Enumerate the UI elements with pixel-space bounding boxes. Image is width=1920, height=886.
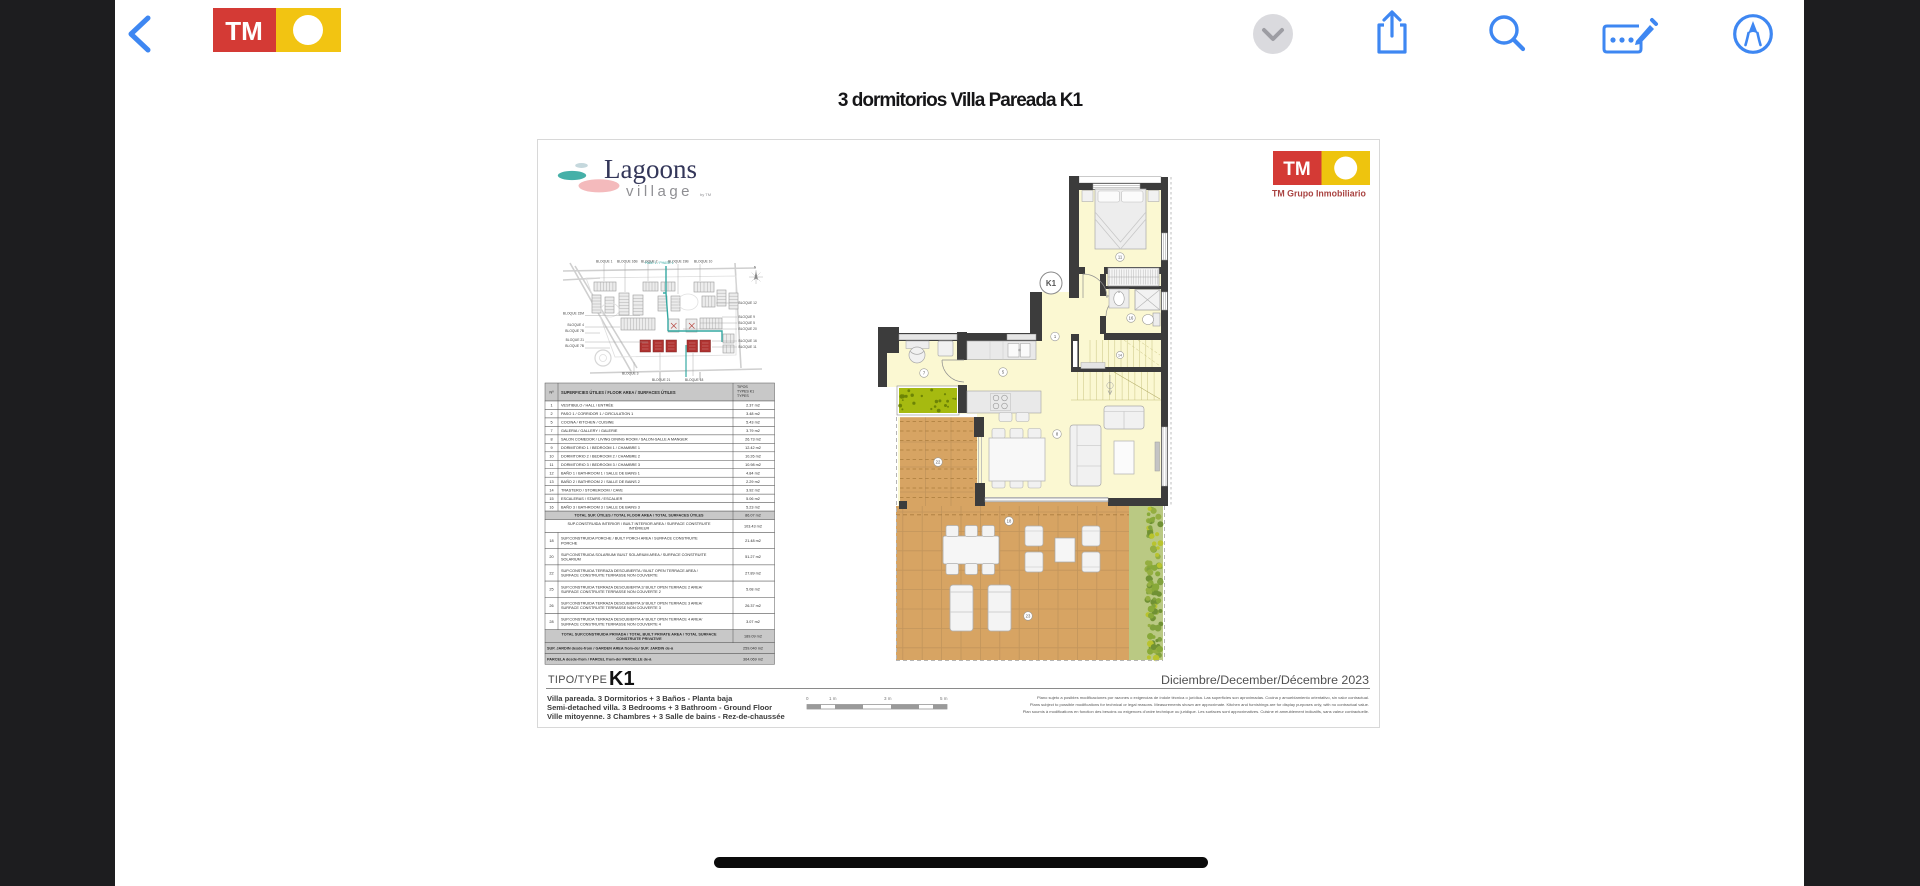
svg-text:SUP. JARDIN desde-from / GARDE: SUP. JARDIN desde-from / GARDEN AREA fro… [547,647,674,651]
svg-text:BLOQUE 19B: BLOQUE 19B [668,260,689,264]
svg-text:Diciembre/December/Décembre 20: Diciembre/December/Décembre 2023 [1161,673,1369,687]
svg-text:BLOQUE 18: BLOQUE 18 [685,378,703,382]
svg-text:16: 16 [549,505,553,509]
svg-text:SUP.CONSTRUIDA TERRAZA DESCUBI: SUP.CONSTRUIDA TERRAZA DESCUBIERTA 3/ BU… [561,602,703,606]
svg-text:TM Grupo Inmobiliario: TM Grupo Inmobiliario [1272,189,1366,199]
svg-text:TIPO/TYPE: TIPO/TYPE [548,674,607,686]
svg-text:BLOQUE 15M: BLOQUE 15M [563,312,584,316]
svg-text:2: 2 [550,412,552,416]
svg-text:Plans subject to possible modi: Plans subject to possible modifications … [1030,702,1369,707]
svg-text:TOTAL SUP.CONSTRUIDA PRIVADA /: TOTAL SUP.CONSTRUIDA PRIVADA / TOTAL BUI… [562,632,717,636]
svg-text:BLOQUE 5: BLOQUE 5 [739,321,756,325]
svg-text:SUP.CONSTRUIDA INTERIOR / BUIL: SUP.CONSTRUIDA INTERIOR / BUILT INTERIOR… [567,522,711,526]
svg-text:BLOQUE 12: BLOQUE 12 [739,301,757,305]
svg-text:27.89 m2: 27.89 m2 [745,571,761,575]
svg-text:13: 13 [549,480,553,484]
svg-text:DORMITORIO 2 / BEDROOM 2 / CHA: DORMITORIO 2 / BEDROOM 2 / CHAMBRE 2 [561,454,640,458]
svg-text:Ville mitoyenne. 3 Chambres +: Ville mitoyenne. 3 Chambres + 3 Salle de… [547,712,785,721]
svg-text:BLOQUE 21: BLOQUE 21 [566,338,584,342]
svg-text:5.43 m2: 5.43 m2 [746,421,760,425]
svg-text:3.07 m2: 3.07 m2 [746,620,760,624]
svg-text:8: 8 [550,438,552,442]
svg-text:11: 11 [550,463,554,467]
svg-text:BLOQUE 9: BLOQUE 9 [739,315,756,319]
svg-text:10.26 m2: 10.26 m2 [745,454,761,458]
svg-text:SOLARIUM: SOLARIUM [561,558,581,562]
svg-text:SURFACE CONSTRUITE TERRASSE NO: SURFACE CONSTRUITE TERRASSE NON COUVERTE… [561,622,661,626]
svg-text:18: 18 [1007,519,1012,524]
svg-text:village: village [626,183,693,200]
svg-text:PORCHE: PORCHE [561,541,578,545]
svg-text:Nº: Nº [549,390,554,395]
svg-text:12.42 m2: 12.42 m2 [745,446,761,450]
svg-text:189.09 m2: 189.09 m2 [744,635,762,639]
svg-text:SUPERFICIES ÚTILES / FLOOR ARE: SUPERFICIES ÚTILES / FLOOR AREA / SURFAC… [561,390,676,395]
svg-text:86.07 m2: 86.07 m2 [745,514,761,518]
svg-text:Villa pareada. 3 Dormitorios +: Villa pareada. 3 Dormitorios + 3 Baños -… [547,694,733,703]
svg-text:GALERIA / GALLERY / GALERIE: GALERIA / GALLERY / GALERIE [561,429,618,433]
svg-text:BLOQUE 3: BLOQUE 3 [622,372,639,376]
svg-text:CONSTRUITE PRIVATIVE: CONSTRUITE PRIVATIVE [616,637,662,641]
svg-text:15: 15 [549,497,553,501]
svg-text:SUP.CONSTRUIDA TERRAZA DESCUBI: SUP.CONSTRUIDA TERRAZA DESCUBIERTA 2/ BU… [561,585,703,589]
svg-text:Lagoons: Lagoons [604,154,697,184]
svg-text:4.84 m2: 4.84 m2 [746,471,760,475]
svg-text:SUP.CONSTRUIDA TERRAZA DESCUBI: SUP.CONSTRUIDA TERRAZA DESCUBIERTA 4/ BU… [561,618,703,622]
svg-text:3 m: 3 m [884,696,892,701]
svg-text:TYPES: TYPES [737,394,749,398]
svg-text:Semi-detached villa. 3 Bedroom: Semi-detached villa. 3 Bedrooms + 3 Bath… [547,703,772,712]
svg-text:1 m: 1 m [829,696,837,701]
svg-text:26: 26 [549,604,553,608]
svg-text:Plano sujeto a posibles modifi: Plano sujeto a posibles modificaciones p… [1037,695,1369,700]
svg-text:BLOQUE 4: BLOQUE 4 [568,323,585,327]
svg-text:51.27 m2: 51.27 m2 [745,555,761,559]
svg-text:22: 22 [936,460,941,465]
svg-text:TOTAL SUP. ÚTILES / TOTAL FLO: TOTAL SUP. ÚTILES / TOTAL FLOOR AREA / T… [574,513,704,518]
svg-text:3.92 m2: 3.92 m2 [746,488,760,492]
svg-text:9: 9 [550,446,552,450]
svg-text:BLOQUE 16: BLOQUE 16 [739,339,757,343]
svg-text:K1: K1 [609,668,635,690]
svg-text:25: 25 [549,588,553,592]
svg-text:BLOQUE 20: BLOQUE 20 [739,327,757,331]
svg-text:1: 1 [550,404,552,408]
svg-text:PARCELA desde-from / PARCEL f: PARCELA desde-from / PARCEL from-de/ PAR… [547,657,652,661]
svg-text:BLOQUE 11: BLOQUE 11 [739,345,757,349]
svg-text:BLOQUE 1: BLOQUE 1 [596,260,613,264]
svg-text:PASO 1 / CORRIDOR 1 / CIRCULAT: PASO 1 / CORRIDOR 1 / CIRCULATION 1 [561,412,633,416]
svg-text:TM: TM [1283,159,1310,180]
svg-text:Plan soumis à modifications en: Plan soumis à modifications en fonction … [1023,709,1369,714]
svg-text:BLOQUE 7B: BLOQUE 7B [565,329,584,333]
svg-text:INTÉRIEUR: INTÉRIEUR [629,526,650,531]
svg-text:5: 5 [550,421,552,425]
svg-text:20: 20 [549,555,553,559]
svg-text:259.040 m2: 259.040 m2 [743,647,763,651]
svg-text:21.48 m2: 21.48 m2 [745,539,761,543]
svg-text:BAÑO 2 / BATHROOM 2 / SALLE DE: BAÑO 2 / BATHROOM 2 / SALLE DE BAINS 2 [561,479,640,484]
svg-text:BLOQUE 7B: BLOQUE 7B [565,344,584,348]
svg-text:SALON COMEDOR / LIVING DINING: SALON COMEDOR / LIVING DINING ROOM / SAL… [561,438,688,442]
svg-text:22: 22 [549,571,553,575]
svg-text:SUP.CONSTRUIDA SOLARIUM/ BUILT: SUP.CONSTRUIDA SOLARIUM/ BUILT SOLARIUM … [561,553,707,557]
svg-text:VESTIBULO / HALL / ENTRÉE: VESTIBULO / HALL / ENTRÉE [561,403,614,408]
svg-text:10: 10 [549,454,553,458]
svg-text:5.23 m2: 5.23 m2 [746,505,760,509]
svg-text:TRASTERO / STOREROOM / CAVE: TRASTERO / STOREROOM / CAVE [561,488,623,492]
svg-text:SUP.CONSTRUIDA PORCHE / BUILT: SUP.CONSTRUIDA PORCHE / BUILT PORCH AREA… [561,537,698,541]
svg-text:12: 12 [549,471,553,475]
svg-text:BAÑO 1 / BATHROOM 1 / SALLE DE: BAÑO 1 / BATHROOM 1 / SALLE DE BAINS 1 [561,470,640,475]
svg-text:TM: TM [225,16,263,46]
svg-text:2.37 m2: 2.37 m2 [746,404,760,408]
svg-text:5.08 m2: 5.08 m2 [746,588,760,592]
svg-text:23: 23 [1026,614,1031,619]
svg-text:2.29 m2: 2.29 m2 [746,480,760,484]
svg-text:18: 18 [549,539,553,543]
svg-text:ESCALERAS / STAIRS / ESCALIER: ESCALERAS / STAIRS / ESCALIER [561,497,623,501]
svg-text:SURFACE CONSTRUITE TERRASSE NO: SURFACE CONSTRUITE TERRASSE NON COUVERTE… [561,590,661,594]
svg-text:3.79 m2: 3.79 m2 [746,429,760,433]
svg-text:26.73 m2: 26.73 m2 [745,438,761,442]
svg-text:14: 14 [549,488,553,492]
svg-text:SURFACE CONSTRUITE TERRASSE NO: SURFACE CONSTRUITE TERRASSE NON COUVERTE… [561,606,661,610]
svg-text:DORMITORIO 1 / BEDROOM 1 / CHA: DORMITORIO 1 / BEDROOM 1 / CHAMBRE 1 [561,446,640,450]
svg-text:5 m: 5 m [940,696,948,701]
svg-text:BLOQUE 16B: BLOQUE 16B [617,260,638,264]
svg-text:TYPES K1: TYPES K1 [737,390,754,394]
svg-text:BLOQUE 10: BLOQUE 10 [694,260,712,264]
svg-text:14: 14 [1118,354,1122,358]
svg-text:SURFACE CONSTRUITE TERRASSE NO: SURFACE CONSTRUITE TERRASSE NON COUVERTE [561,574,658,578]
svg-text:28: 28 [549,620,553,624]
svg-text:16: 16 [1129,316,1134,321]
svg-text:K1: K1 [1046,279,1057,288]
svg-text:103.43 m2: 103.43 m2 [744,524,762,528]
svg-text:364.069 m2: 364.069 m2 [743,657,763,661]
svg-text:10.98 m2: 10.98 m2 [745,463,761,467]
svg-text:DORMITORIO 3 / BEDROOM 3 / CHA: DORMITORIO 3 / BEDROOM 3 / CHAMBRE 3 [561,463,640,467]
svg-text:11: 11 [1118,255,1123,260]
svg-text:by TM: by TM [700,192,711,197]
svg-text:BLOQUE 2: BLOQUE 2 [641,260,658,264]
svg-text:7: 7 [550,429,552,433]
svg-text:COCINA / KITCHEN / CUISINE: COCINA / KITCHEN / CUISINE [561,421,614,425]
svg-text:5.06 m2: 5.06 m2 [746,497,760,501]
svg-text:26.37 m2: 26.37 m2 [745,604,761,608]
svg-text:SUP.CONSTRUIDA TERRAZA DESCUBI: SUP.CONSTRUIDA TERRAZA DESCUBIERTA / BUI… [561,569,699,573]
svg-text:BLOQUE 21: BLOQUE 21 [652,378,670,382]
svg-text:3.48 m2: 3.48 m2 [746,412,760,416]
svg-text:TIPOS: TIPOS [737,385,748,389]
svg-text:BAÑO 3 / BATHROOM 3 / SALLE DE: BAÑO 3 / BATHROOM 3 / SALLE DE BAINS 3 [561,504,640,509]
